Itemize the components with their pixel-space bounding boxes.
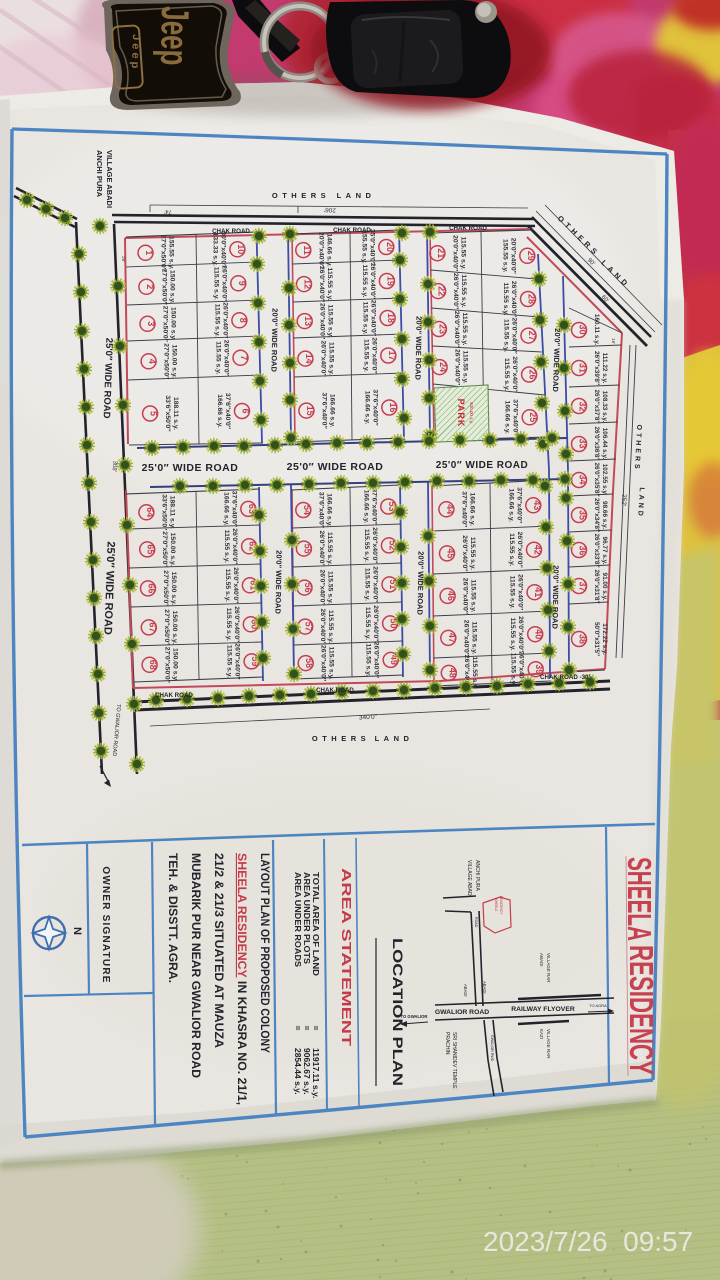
svg-text:26'0″x40'0″: 26'0″x40'0″ <box>371 527 378 564</box>
svg-text:48: 48 <box>447 668 457 678</box>
svg-text:150.00 s.y.: 150.00 s.y. <box>170 307 177 341</box>
svg-text:26'0″x40'0″: 26'0″x40'0″ <box>452 273 459 310</box>
svg-text:166.66 s.y.: 166.66 s.y. <box>216 394 223 428</box>
svg-text:22: 22 <box>437 286 447 296</box>
svg-text:CHAK ROAD: CHAK ROAD <box>155 692 193 699</box>
svg-text:115.55 s.y.: 115.55 s.y. <box>226 645 233 678</box>
svg-text:18: 18 <box>386 313 396 323</box>
svg-text:37'6″x40'0″: 37'6″x40'0″ <box>230 491 237 528</box>
svg-text:LOCATION PLAN: LOCATION PLAN <box>390 938 405 1086</box>
svg-text:ANCHI PURA: ANCHI PURA <box>474 860 480 892</box>
svg-text:10: 10 <box>236 244 246 254</box>
svg-text:68: 68 <box>148 660 158 670</box>
svg-text:20'0″ WIDE ROAD: 20'0″ WIDE ROAD <box>415 551 425 615</box>
svg-text:LAYOUT PLAN OF PROPOSED CO: LAYOUT PLAN OF PROPOSED COLONY <box>258 853 270 1053</box>
svg-text:26'0″x40'0″: 26'0″x40'0″ <box>461 535 468 572</box>
svg-text:115.55 s.y.: 115.55 s.y. <box>224 569 231 602</box>
svg-text:58: 58 <box>304 658 314 668</box>
svg-text:26'0″x36'8″: 26'0″x36'8″ <box>593 426 600 460</box>
svg-text:44: 44 <box>445 504 455 514</box>
svg-text:TO GWALIOR: TO GWALIOR <box>401 1014 428 1019</box>
svg-text:26'0″x34'8″: 26'0″x34'8″ <box>593 498 600 532</box>
svg-text:RAILWAY FLYOVER: RAILWAY FLYOVER <box>511 1006 575 1013</box>
svg-text:65: 65 <box>146 544 156 554</box>
svg-text:21/2 & 21/3 SITUATED AT MAU: 21/2 & 21/3 SITUATED AT MAUZA <box>212 853 224 1048</box>
svg-text:133.33 s.y.: 133.33 s.y. <box>211 233 218 267</box>
svg-text:115.55 s.y.: 115.55 s.y. <box>461 312 468 345</box>
svg-text:155.55 s.y.: 155.55 s.y. <box>501 239 508 273</box>
svg-text:15: 15 <box>305 406 315 416</box>
svg-text:91.00 s.y.: 91.00 s.y. <box>601 573 608 601</box>
svg-text:37'6″x40'0″: 37'6″x40'0″ <box>317 492 324 529</box>
svg-text:35: 35 <box>578 510 588 520</box>
svg-text:115.55 s.y.: 115.55 s.y. <box>363 529 370 562</box>
svg-text:32: 32 <box>578 401 588 411</box>
svg-text:33'6″x50'0″: 33'6″x50'0″ <box>164 395 171 432</box>
svg-text:150.00 s.y.: 150.00 s.y. <box>170 572 177 606</box>
svg-text:150.00 s.y.: 150.00 s.y. <box>172 648 179 682</box>
svg-text:155.55 s.y.: 155.55 s.y. <box>168 236 175 270</box>
svg-text:17: 17 <box>387 350 397 360</box>
svg-text:43: 43 <box>532 500 542 510</box>
svg-text:26'0″x31'8″: 26'0″x31'8″ <box>593 569 600 603</box>
svg-text:66: 66 <box>147 583 157 593</box>
svg-text:26: 26 <box>528 369 538 379</box>
svg-text:11: 11 <box>302 245 312 255</box>
svg-text:4: 4 <box>147 359 157 364</box>
svg-text:33: 33 <box>578 438 588 448</box>
svg-text:115.55 s.y.: 115.55 s.y. <box>459 237 466 270</box>
svg-text:115.55 s.y.: 115.55 s.y. <box>364 568 371 601</box>
svg-text:RESIDENCY: RESIDENCY <box>499 896 503 915</box>
svg-text:26'0″x40'0″: 26'0″x40'0″ <box>319 303 326 340</box>
svg-text:J e e p: J e e p <box>129 34 142 69</box>
svg-text:115.55 s.y.: 115.55 s.y. <box>362 301 369 334</box>
svg-text:26'0″x40'0″: 26'0″x40'0″ <box>319 569 326 606</box>
svg-text:37'6″x40'0″: 37'6″x40'0″ <box>370 488 377 525</box>
svg-text:115.55 s.y.: 115.55 s.y. <box>212 267 219 300</box>
svg-text:115.55 s.y.: 115.55 s.y. <box>509 618 516 651</box>
svg-text:67: 67 <box>147 622 157 632</box>
svg-text:VILLAGE ABADI: VILLAGE ABADI <box>105 150 114 208</box>
svg-text:AREA STATEMENT: AREA STATEMENT <box>339 868 354 1046</box>
svg-text:115.55 s.y.: 115.55 s.y. <box>365 643 372 676</box>
svg-text:166.66 s.y.: 166.66 s.y. <box>504 401 511 435</box>
svg-text:206': 206' <box>324 206 336 214</box>
svg-text:26'0″x40'0″: 26'0″x40'0″ <box>511 356 518 393</box>
svg-text:252': 252' <box>620 494 628 506</box>
svg-text:166.66 s.y.: 166.66 s.y. <box>468 493 475 527</box>
svg-text:26'0″x40'0″: 26'0″x40'0″ <box>319 340 326 377</box>
svg-text:16': 16' <box>611 338 616 344</box>
svg-text:N: N <box>71 927 83 935</box>
svg-text:26'0″x40'0″: 26'0″x40'0″ <box>369 263 376 300</box>
svg-text:2: 2 <box>145 284 155 289</box>
svg-text:CHAK ROAD: CHAK ROAD <box>449 225 487 232</box>
svg-text:54: 54 <box>302 505 312 515</box>
svg-text:KAZI: KAZI <box>539 1029 544 1039</box>
svg-text:ABADI: ABADI <box>463 984 468 997</box>
svg-text:400.00 s.y.: 400.00 s.y. <box>469 402 474 424</box>
svg-text:155.55 s.y.: 155.55 s.y. <box>360 230 367 264</box>
svg-text:115.55 s.y.: 115.55 s.y. <box>327 610 334 643</box>
svg-text:TEH. & DISSTT. AGRA.: TEH. & DISSTT. AGRA. <box>166 853 178 983</box>
svg-text:26'0″x40'0″: 26'0″x40'0″ <box>517 574 524 611</box>
svg-text:115.55 s.y.: 115.55 s.y. <box>326 532 333 565</box>
svg-text:57: 57 <box>304 622 314 632</box>
svg-text:26'0″x40'0″: 26'0″x40'0″ <box>318 266 325 303</box>
svg-text:Jeep: Jeep <box>152 6 197 66</box>
svg-text:188.11 s.y.: 188.11 s.y. <box>168 496 175 529</box>
svg-text:CHAK ROAD: CHAK ROAD <box>333 227 371 234</box>
svg-text:26'0″x40'0″: 26'0″x40'0″ <box>372 605 379 642</box>
svg-text:PARK: PARK <box>456 399 466 428</box>
svg-text:3: 3 <box>146 321 156 326</box>
svg-text:26'0″x40'0″: 26'0″x40'0″ <box>454 349 461 386</box>
svg-text:150.00 s.y.: 150.00 s.y. <box>169 533 176 567</box>
svg-text:26'0″x40'0″: 26'0″x40'0″ <box>232 567 239 604</box>
svg-text:26'0″x39'8″: 26'0″x39'8″ <box>593 351 600 385</box>
svg-text:20'0″ WIDE ROAD: 20'0″ WIDE ROAD <box>550 565 560 629</box>
svg-text:115.55 s.y.: 115.55 s.y. <box>508 533 515 566</box>
svg-text:31: 31 <box>578 363 588 373</box>
svg-text:VILLAGE RAR: VILLAGE RAR <box>546 953 551 983</box>
svg-text:20'0″x40'0″: 20'0″x40'0″ <box>509 238 516 275</box>
svg-text:111.22 s.y.: 111.22 s.y. <box>601 353 608 384</box>
svg-text:27'0″x50'0″: 27'0″x50'0″ <box>164 647 171 684</box>
svg-text:166.66 s.y.: 166.66 s.y. <box>362 490 369 524</box>
svg-text:108.33 s.y.: 108.33 s.y. <box>601 391 608 423</box>
svg-text:308': 308' <box>111 460 118 472</box>
svg-text:115.55 s.y.: 115.55 s.y. <box>462 351 469 384</box>
svg-text:SHEELA RESIDENCY IN KHASRA NO.: SHEELA RESIDENCY IN KHASRA NO. 21/1, <box>235 853 247 1105</box>
svg-text:13: 13 <box>303 316 313 326</box>
svg-text:CHAK ROAD -30'-: CHAK ROAD -30'- <box>540 674 592 681</box>
svg-text:40: 40 <box>534 629 544 639</box>
svg-text:33'6″x50'0″: 33'6″x50'0″ <box>160 494 167 531</box>
svg-text:7: 7 <box>239 355 249 360</box>
svg-text:166.66 s.y.: 166.66 s.y. <box>328 394 335 428</box>
svg-text:9: 9 <box>237 281 247 286</box>
svg-text:150.00 s.y.: 150.00 s.y. <box>168 270 175 304</box>
svg-text:GWALIOR RWD: GWALIOR RWD <box>490 1035 494 1062</box>
svg-text:160.11 s.y.: 160.11 s.y. <box>593 314 600 345</box>
svg-text:26'0″x40'0″: 26'0″x40'0″ <box>511 317 518 354</box>
svg-text:26'0″x40'0″: 26'0″x40'0″ <box>221 302 228 339</box>
svg-text:102.55 s.y.: 102.55 s.y. <box>601 464 608 496</box>
svg-text:2854.44 s.y.: 2854.44 s.y. <box>293 1048 303 1095</box>
svg-text:150.00 s.y.: 150.00 s.y. <box>171 611 178 645</box>
svg-text:115.55 s.y.: 115.55 s.y. <box>327 305 334 338</box>
svg-text:26'0″x40'0″: 26'0″x40'0″ <box>373 642 380 679</box>
svg-text:AREA UNDER ROADS: AREA UNDER ROADS <box>293 872 303 967</box>
svg-text:98.66 s.y.: 98.66 s.y. <box>601 501 608 529</box>
svg-text:24: 24 <box>438 362 448 372</box>
svg-text:172.22 s.y.: 172.22 s.y. <box>601 623 608 655</box>
svg-text:115.55 s.y.: 115.55 s.y. <box>361 264 368 297</box>
svg-text:37'6″x40'0″: 37'6″x40'0″ <box>460 491 467 528</box>
svg-text:26': 26' <box>121 256 126 262</box>
svg-text:26'0″x37'8″: 26'0″x37'8″ <box>593 389 600 423</box>
svg-text:20'0″ WIDE ROAD: 20'0″ WIDE ROAD <box>269 308 279 372</box>
svg-text:26'0″x40'0″: 26'0″x40'0″ <box>510 281 517 318</box>
svg-text:96.77 s.y.: 96.77 s.y. <box>601 537 608 565</box>
svg-text:36: 36 <box>578 545 588 555</box>
svg-text:47: 47 <box>447 633 457 643</box>
svg-text:ABADI: ABADI <box>539 953 544 967</box>
svg-text:2023/7/26 09:57: 2023/7/26 09:57 <box>483 1226 693 1257</box>
svg-text:CHAK ROAD: CHAK ROAD <box>212 228 250 235</box>
svg-text:=: = <box>293 1026 303 1031</box>
svg-text:37'6″x40'0″: 37'6″x40'0″ <box>371 389 378 426</box>
svg-text:340'0″: 340'0″ <box>359 713 378 721</box>
svg-text:26'0″x35'8″: 26'0″x35'8″ <box>593 462 600 496</box>
svg-text:37'6″x40'0″: 37'6″x40'0″ <box>224 393 231 430</box>
svg-text:115.55 s.y.: 115.55 s.y. <box>503 358 510 391</box>
svg-text:25'0″ WIDE ROAD: 25'0″ WIDE ROAD <box>287 461 384 473</box>
svg-text:28: 28 <box>527 294 537 304</box>
svg-text:SHEELA: SHEELA <box>494 899 498 912</box>
svg-text:188.11 s.y.: 188.11 s.y. <box>172 397 179 430</box>
svg-text:115.55 s.y.: 115.55 s.y. <box>503 319 510 352</box>
svg-text:CHAK ROAD: CHAK ROAD <box>316 687 354 694</box>
svg-text:OTHERS: OTHERS <box>272 191 330 200</box>
svg-text:115.55 s.y.: 115.55 s.y. <box>509 576 516 609</box>
svg-text:ABADI: ABADI <box>482 981 487 994</box>
svg-text:23: 23 <box>437 324 447 334</box>
svg-text:26'0″x40'0″: 26'0″x40'0″ <box>462 620 469 657</box>
svg-text:25'0″ WIDE ROAD: 25'0″ WIDE ROAD <box>436 460 528 471</box>
svg-text:1: 1 <box>144 250 154 255</box>
svg-text:27'0″x50'0″: 27'0″x50'0″ <box>162 306 169 343</box>
svg-text:26'0″x40'0″: 26'0″x40'0″ <box>462 578 469 615</box>
svg-text:45: 45 <box>446 548 456 558</box>
svg-text:106.44 s.y.: 106.44 s.y. <box>601 428 608 460</box>
svg-text:27'0″x50'0″: 27'0″x50'0″ <box>163 343 170 380</box>
svg-text:RESIDENCY: RESIDENCY <box>623 945 660 1075</box>
svg-text:115.55 s.y.: 115.55 s.y. <box>470 579 477 612</box>
svg-text:115.55 s.y.: 115.55 s.y. <box>213 304 220 337</box>
svg-text:115.55 s.y.: 115.55 s.y. <box>460 275 467 308</box>
svg-text:74': 74' <box>164 208 172 214</box>
svg-text:MUBARIK PUR NEAR GWALIOR R: MUBARIK PUR NEAR GWALIOR ROAD <box>189 853 201 1078</box>
svg-text:20'0″ WIDE ROAD: 20'0″ WIDE ROAD <box>413 316 423 380</box>
svg-text:6: 6 <box>241 408 251 413</box>
svg-text:25'0″ WIDE ROAD: 25'0″ WIDE ROAD <box>142 462 239 474</box>
svg-text:115.55 s.y.: 115.55 s.y. <box>510 653 517 686</box>
svg-text:26'0″x40'0″: 26'0″x40'0″ <box>234 643 241 680</box>
svg-text:27'0″x50'0″: 27'0″x50'0″ <box>161 531 168 568</box>
svg-text:26'0″x40'0″: 26'0″x40'0″ <box>320 645 327 682</box>
svg-text:115.55 s.y.: 115.55 s.y. <box>362 339 369 372</box>
svg-text:27'0″x50'0″: 27'0″x50'0″ <box>162 570 169 607</box>
svg-text:166.66 s.y.: 166.66 s.y. <box>325 493 332 527</box>
svg-text:34: 34 <box>578 474 588 484</box>
svg-text:115.55 s.y.: 115.55 s.y. <box>364 607 371 640</box>
svg-text:49: 49 <box>389 655 399 665</box>
svg-text:26'0″x40'0″: 26'0″x40'0″ <box>231 528 238 565</box>
svg-text:39: 39 <box>534 664 544 674</box>
svg-text:115.55 s.y.: 115.55 s.y. <box>223 530 230 563</box>
svg-text:166.66 s.y.: 166.66 s.y. <box>363 391 370 425</box>
svg-text:VILLAGE ABADI: VILLAGE ABADI <box>466 860 472 897</box>
svg-text:LAND: LAND <box>337 191 376 200</box>
svg-text:27'0″x50'0″: 27'0″x50'0″ <box>163 609 170 646</box>
svg-text:115.55 s.y.: 115.55 s.y. <box>225 608 232 641</box>
svg-text:37'6″x40'0″: 37'6″x40'0″ <box>515 487 522 524</box>
svg-text:146.66 s.y.: 146.66 s.y. <box>325 233 332 267</box>
svg-text:115.55 s.y.: 115.55 s.y. <box>470 621 477 654</box>
svg-text:115.55 s.y.: 115.55 s.y. <box>326 268 333 301</box>
svg-text:ROAD: ROAD <box>474 917 478 928</box>
svg-text:41: 41 <box>533 587 543 597</box>
svg-text:VILLAGE RAR: VILLAGE RAR <box>546 1029 551 1059</box>
svg-text:27'0″x50'0″: 27'0″x50'0″ <box>160 235 167 272</box>
svg-text:20'0″x40'0″: 20'0″x40'0″ <box>317 232 324 269</box>
svg-text:20'0″ WIDE ROAD: 20'0″ WIDE ROAD <box>273 550 283 614</box>
svg-text:26'0″x40'0″: 26'0″x40'0″ <box>319 608 326 645</box>
svg-text:OWNER SIGNATURE: OWNER SIGNATURE <box>100 866 111 983</box>
svg-text:26'0″x40'0″: 26'0″x40'0″ <box>516 532 523 569</box>
svg-text:26'0″x40'0″: 26'0″x40'0″ <box>223 340 230 377</box>
svg-text:26'0″x33'8″: 26'0″x33'8″ <box>593 533 600 567</box>
svg-text:21: 21 <box>436 248 446 258</box>
svg-text:26'0″x40'0″: 26'0″x40'0″ <box>372 566 379 603</box>
svg-text:20: 20 <box>385 242 395 252</box>
svg-text:26'0″x40'0″: 26'0″x40'0″ <box>370 337 377 374</box>
svg-text:26'0″x40'0″: 26'0″x40'0″ <box>453 311 460 348</box>
svg-text:150.00 s.y.: 150.00 s.y. <box>171 345 178 379</box>
svg-text:30: 30 <box>578 324 588 334</box>
svg-text:30'0″x40'0″: 30'0″x40'0″ <box>219 231 226 268</box>
svg-text:PRACHIN: PRACHIN <box>444 1032 450 1055</box>
svg-text:25: 25 <box>528 412 538 422</box>
svg-text:37'6″x40'0″: 37'6″x40'0″ <box>320 392 327 429</box>
svg-text:27: 27 <box>527 331 537 341</box>
svg-text:50'0″x31'5″: 50'0″x31'5″ <box>593 622 600 656</box>
svg-text:115.55 s.y.: 115.55 s.y. <box>327 571 334 604</box>
svg-text:LAND: LAND <box>375 734 414 743</box>
svg-text:35'0″x40'0″: 35'0″x40'0″ <box>368 229 375 266</box>
svg-text:166.66 s.y.: 166.66 s.y. <box>507 489 514 523</box>
svg-text:SHEELA: SHEELA <box>621 857 658 941</box>
svg-text:55: 55 <box>302 544 312 554</box>
svg-text:115.55 s.y.: 115.55 s.y. <box>215 341 222 374</box>
svg-text:16: 16 <box>388 402 398 412</box>
svg-text:26'0″x40'0″: 26'0″x40'0″ <box>220 265 227 302</box>
svg-text:SRI SHANIDEV TEMPLE: SRI SHANIDEV TEMPLE <box>451 1032 457 1089</box>
svg-text:37'6″x40'0″: 37'6″x40'0″ <box>512 399 519 436</box>
svg-text:29: 29 <box>526 251 536 261</box>
svg-text:20'0″x40'0″: 20'0″x40'0″ <box>451 235 458 272</box>
svg-text:64: 64 <box>145 507 155 517</box>
svg-text:14: 14 <box>304 354 314 364</box>
svg-text:26'0″x40'0″: 26'0″x40'0″ <box>233 606 240 643</box>
svg-text:115.55 s.y.: 115.55 s.y. <box>471 656 478 689</box>
svg-text:OTHERS: OTHERS <box>312 734 370 743</box>
svg-text:8: 8 <box>238 318 248 323</box>
svg-text:19: 19 <box>385 276 395 286</box>
svg-text:5: 5 <box>149 411 159 416</box>
svg-text:56: 56 <box>303 583 313 593</box>
svg-text:115.55 s.y.: 115.55 s.y. <box>327 342 334 375</box>
svg-text:115.55 s.y.: 115.55 s.y. <box>502 282 509 315</box>
svg-text:37: 37 <box>578 581 588 591</box>
svg-text:42: 42 <box>533 545 543 555</box>
svg-text:115.55 s.y.: 115.55 s.y. <box>328 647 335 680</box>
svg-text:26'0″x40'0″: 26'0″x40'0″ <box>517 616 524 653</box>
svg-text:27'0″x50'0″: 27'0″x50'0″ <box>160 269 167 306</box>
svg-text:46: 46 <box>446 591 456 601</box>
svg-text:ANCHI PURA: ANCHI PURA <box>95 150 104 198</box>
svg-text:GWALIOR ROAD: GWALIOR ROAD <box>435 1009 489 1016</box>
svg-text:TO AGRA: TO AGRA <box>589 1003 607 1008</box>
svg-text:12: 12 <box>303 279 313 289</box>
svg-text:26'0″x40'0″: 26'0″x40'0″ <box>370 300 377 337</box>
svg-text:115.55 s.y.: 115.55 s.y. <box>469 537 476 570</box>
svg-text:166.66 s.y.: 166.66 s.y. <box>222 492 229 526</box>
svg-text:26'0″x40'0″: 26'0″x40'0″ <box>318 530 325 567</box>
svg-text:38: 38 <box>578 634 588 644</box>
